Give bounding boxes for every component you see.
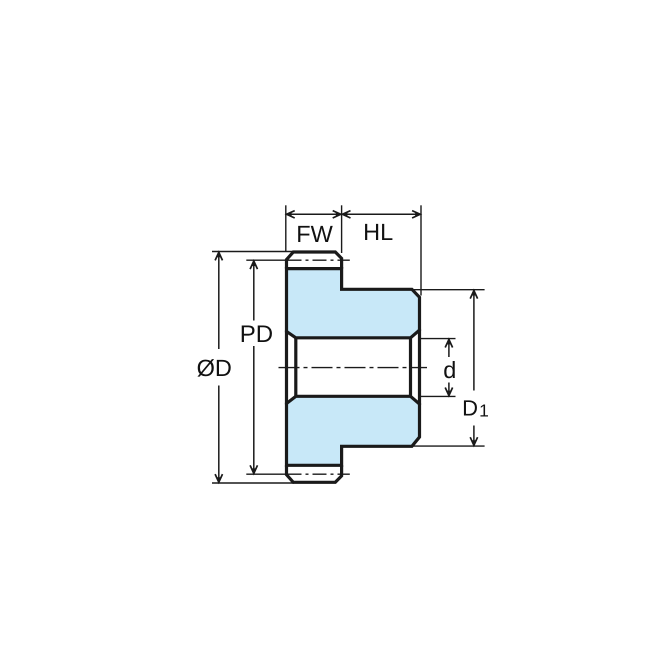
svg-text:FW: FW [296,221,333,247]
svg-text:ØD: ØD [197,355,232,381]
svg-text:d: d [443,357,456,383]
svg-text:D: D [462,396,478,421]
svg-text:PD: PD [240,321,273,348]
svg-text:HL: HL [363,219,393,245]
svg-text:1: 1 [479,401,489,421]
